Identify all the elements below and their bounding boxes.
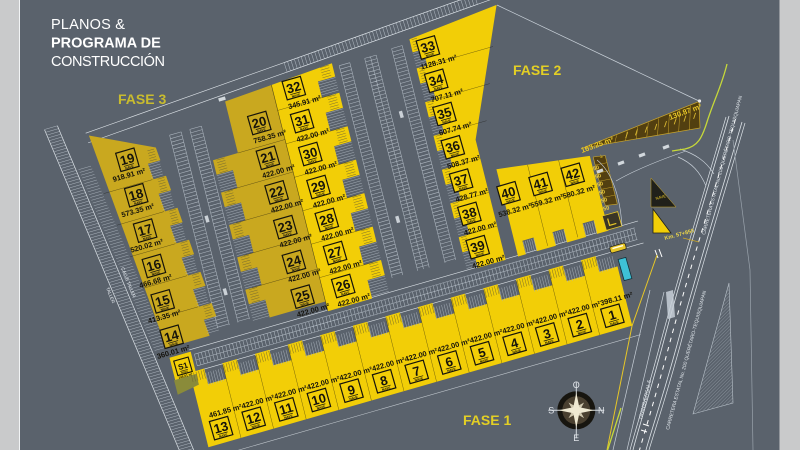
svg-text:N: N [598, 405, 605, 415]
svg-text:FASE 3: FASE 3 [118, 91, 166, 107]
svg-text:O: O [573, 380, 580, 390]
svg-text:PLANOS &: PLANOS & [51, 17, 125, 33]
svg-text:PROGRAMA DE: PROGRAMA DE [51, 36, 161, 52]
svg-text:FASE 2: FASE 2 [513, 62, 561, 78]
svg-text:S: S [548, 405, 554, 415]
svg-text:E: E [573, 433, 579, 443]
svg-text:FASE 1: FASE 1 [463, 412, 511, 428]
svg-text:CONSTRUCCIÓN: CONSTRUCCIÓN [51, 53, 165, 70]
